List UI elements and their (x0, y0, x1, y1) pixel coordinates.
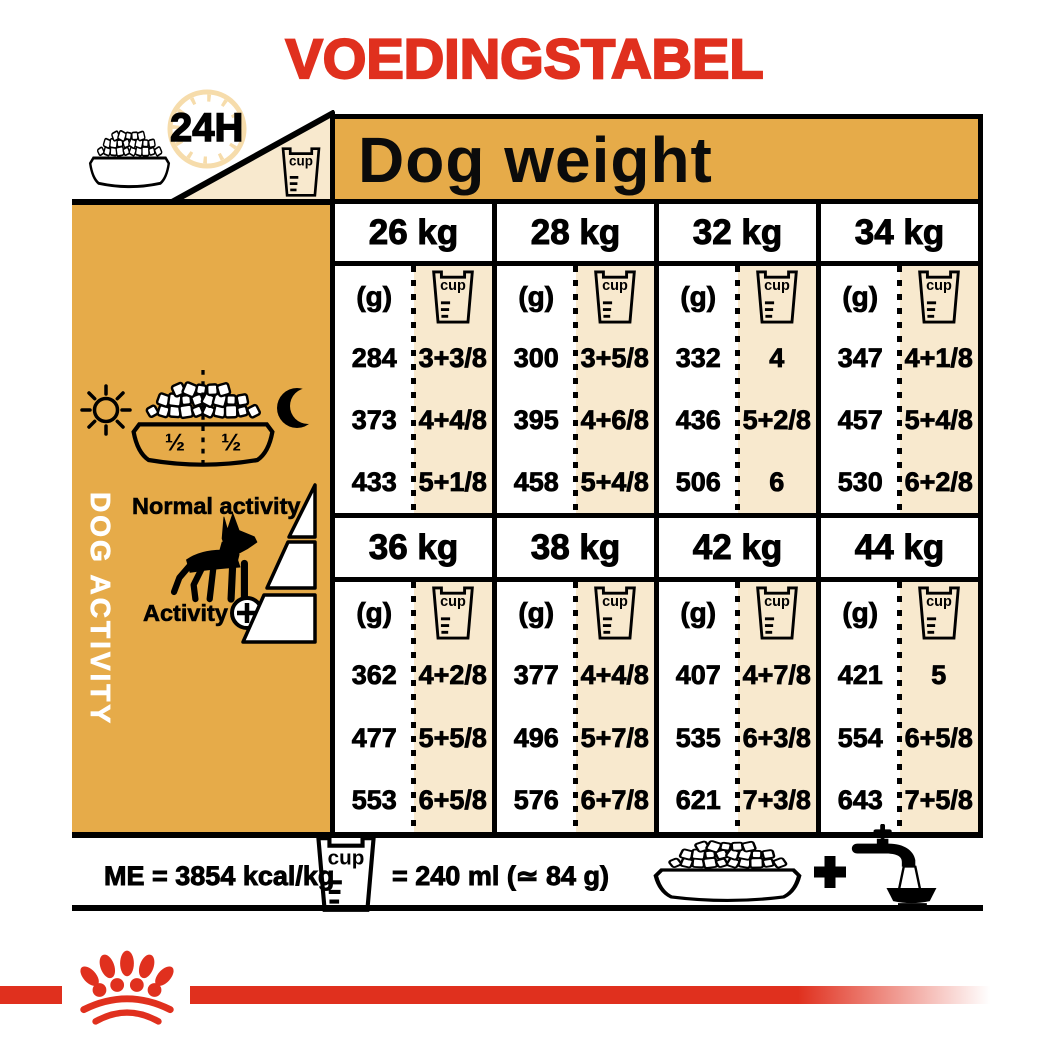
footer-bottom-rule (72, 905, 983, 911)
grams-value: 553 (335, 770, 414, 833)
weight-header-42kg: 42 kg (654, 513, 821, 582)
cups-value: 7+3/8 (738, 770, 817, 833)
grams-value: 530 (821, 451, 900, 513)
grams-value: 421 (821, 645, 900, 708)
amount-cell-26kg: (g)2843+3/83734+4/84335+1/8 (330, 261, 497, 518)
weight-header-36kg: 36 kg (330, 513, 497, 582)
cups-value: 5 (900, 645, 979, 708)
grams-value: 496 (497, 707, 576, 770)
amount-cell-32kg: (g)33244365+2/85066 (654, 261, 821, 518)
measuring-cup-icon (754, 585, 800, 641)
grams-value: 506 (659, 451, 738, 513)
amount-cell-42kg: (g)4074+7/85356+3/86217+3/8 (654, 577, 821, 837)
cups-value: 6+7/8 (576, 770, 655, 833)
brand-stripe-left (0, 986, 62, 1004)
measuring-cup-icon (754, 269, 800, 325)
grams-value: 433 (335, 451, 414, 513)
grams-unit-label: (g) (821, 582, 900, 645)
cups-value: 4 (738, 328, 817, 390)
grams-value: 377 (497, 645, 576, 708)
cups-value: 3+3/8 (414, 328, 493, 390)
grams-value: 477 (335, 707, 414, 770)
grams-unit-label: (g) (335, 266, 414, 328)
grams-value: 300 (497, 328, 576, 390)
grams-value: 373 (335, 390, 414, 452)
amount-cell-44kg: (g)42155546+5/86437+5/8 (816, 577, 983, 837)
weight-header-44kg: 44 kg (816, 513, 983, 582)
cups-value: 5+4/8 (900, 390, 979, 452)
grams-value: 407 (659, 645, 738, 708)
measuring-cup-icon (592, 269, 638, 325)
cups-value: 3+5/8 (576, 328, 655, 390)
cups-value: 6+2/8 (900, 451, 979, 513)
grams-value: 332 (659, 328, 738, 390)
amount-cell-34kg: (g)3474+1/84575+4/85306+2/8 (816, 261, 983, 518)
cups-value: 5+2/8 (738, 390, 817, 452)
cups-value: 6+5/8 (900, 707, 979, 770)
cups-value: 4+1/8 (900, 328, 979, 390)
measuring-cup-icon (592, 585, 638, 641)
grams-unit-label: (g) (659, 266, 738, 328)
cups-value: 4+4/8 (576, 645, 655, 708)
grams-value: 576 (497, 770, 576, 833)
measuring-cup-icon (916, 269, 962, 325)
weight-header-26kg: 26 kg (330, 199, 497, 266)
cup-equivalence-label: = 240 ml (≃ 84 g) (392, 861, 609, 892)
cups-value: 6+3/8 (738, 707, 817, 770)
energy-label: ME = 3854 kcal/kg (104, 861, 334, 892)
cups-value: 7+5/8 (900, 770, 979, 833)
grams-value: 643 (821, 770, 900, 833)
grams-unit-label: (g) (497, 266, 576, 328)
amount-cell-38kg: (g)3774+4/84965+7/85766+7/8 (492, 577, 659, 837)
food-bowl-icon (650, 836, 805, 904)
cups-value: 6 (738, 451, 817, 513)
grams-unit-label: (g) (335, 582, 414, 645)
measuring-cup-icon (430, 269, 476, 325)
cups-value: 5+4/8 (576, 451, 655, 513)
grams-unit-label: (g) (821, 266, 900, 328)
grams-value: 457 (821, 390, 900, 452)
grams-value: 436 (659, 390, 738, 452)
feeding-table-page: cup VOEDINGSTABEL 24H Dog weight (0, 0, 1049, 1049)
brand-stripe-right (190, 986, 990, 1004)
weight-header-34kg: 34 kg (816, 199, 983, 266)
royal-canin-crown-logo (68, 948, 186, 1028)
cups-value: 4+6/8 (576, 390, 655, 452)
plus-icon (812, 854, 848, 890)
weight-header-28kg: 28 kg (492, 199, 659, 266)
cups-value: 5+5/8 (414, 707, 493, 770)
weight-header-38kg: 38 kg (492, 513, 659, 582)
grams-value: 284 (335, 328, 414, 390)
grams-value: 458 (497, 451, 576, 513)
cups-value: 5+7/8 (576, 707, 655, 770)
amount-cell-36kg: (g)3624+2/84775+5/85536+5/8 (330, 577, 497, 837)
grams-unit-label: (g) (497, 582, 576, 645)
cups-value: 4+7/8 (738, 645, 817, 708)
grams-value: 347 (821, 328, 900, 390)
grams-value: 554 (821, 707, 900, 770)
amount-cell-28kg: (g)3003+5/83954+6/84585+4/8 (492, 261, 659, 518)
measuring-cup-icon (314, 834, 378, 914)
grams-value: 535 (659, 707, 738, 770)
grams-value: 362 (335, 645, 414, 708)
measuring-cup-icon (916, 585, 962, 641)
cups-value: 4+4/8 (414, 390, 493, 452)
cups-value: 5+1/8 (414, 451, 493, 513)
cups-value: 4+2/8 (414, 645, 493, 708)
water-tap-icon (848, 824, 948, 906)
grams-value: 621 (659, 770, 738, 833)
measuring-cup-icon (430, 585, 476, 641)
footer-top-rule (72, 832, 983, 838)
cups-value: 6+5/8 (414, 770, 493, 833)
grams-value: 395 (497, 390, 576, 452)
grams-unit-label: (g) (659, 582, 738, 645)
weight-header-32kg: 32 kg (654, 199, 821, 266)
